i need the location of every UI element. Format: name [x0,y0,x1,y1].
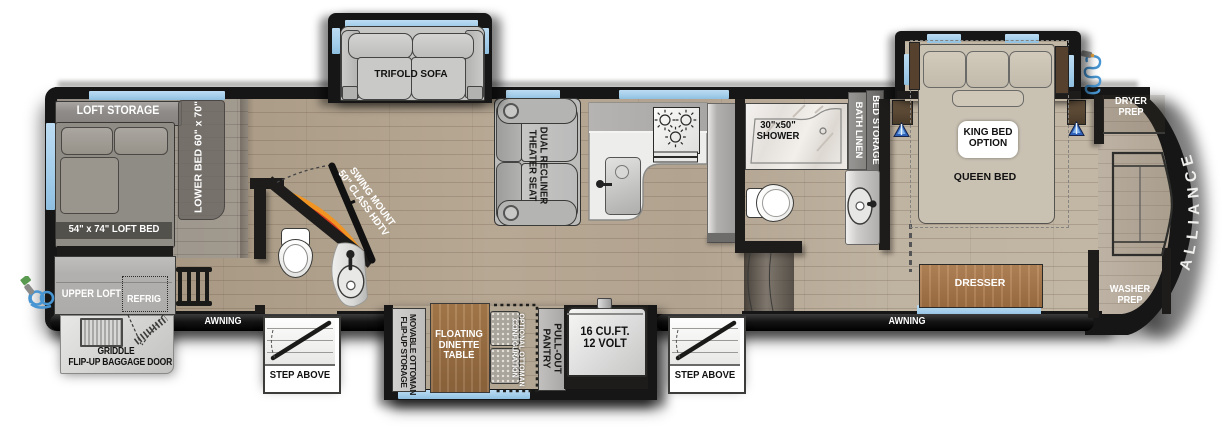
svg-text:ALLIANCE: ALLIANCE [1177,148,1203,273]
